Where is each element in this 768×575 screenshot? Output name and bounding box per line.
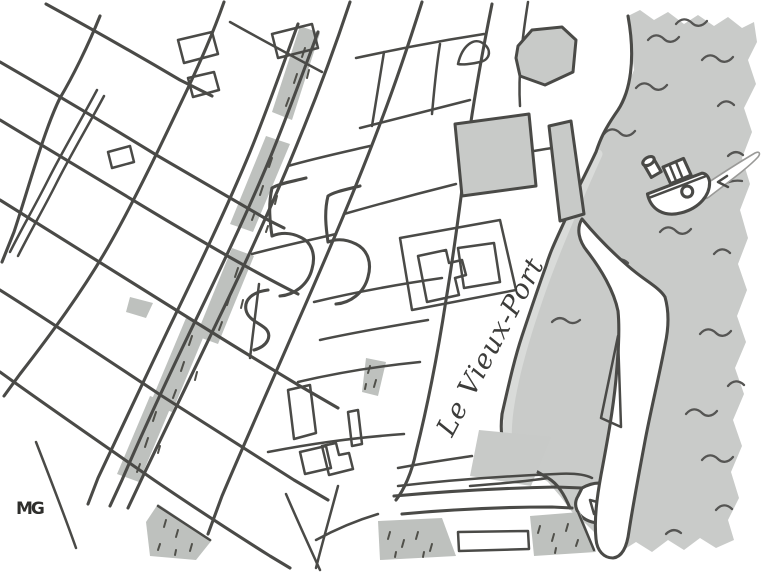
tree-patch (362, 358, 386, 396)
hand-drawn-map-of-vieux-port: Le Vieux-Port MG (0, 0, 768, 575)
tree-patch (126, 297, 153, 318)
small-building (348, 410, 362, 446)
building-block (455, 114, 536, 196)
warehouse-block (549, 121, 584, 221)
boat-porthole (680, 185, 693, 198)
building-block (516, 27, 576, 85)
breakwater-top-edge (394, 487, 582, 496)
sketch-map-page: Le Vieux-Port MG (0, 0, 768, 575)
artist-signature: MG (16, 499, 44, 519)
small-building (188, 72, 219, 97)
small-building (178, 32, 218, 63)
cul-de-sac-loop (458, 41, 489, 64)
dock-rectangle (458, 531, 529, 551)
small-building (288, 385, 316, 439)
breakwater-bottom-edge (402, 507, 572, 514)
avenues (2, 2, 528, 534)
small-building (108, 146, 134, 168)
